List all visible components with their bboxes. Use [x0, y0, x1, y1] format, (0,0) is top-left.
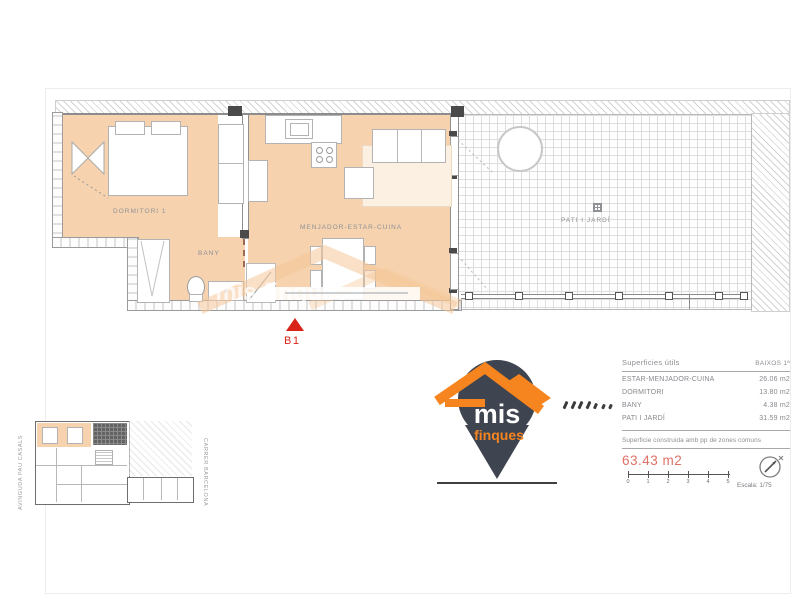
logo-word-finques: finques	[474, 427, 524, 443]
surface-name: DORMITORI	[622, 389, 664, 396]
mis-finques-logo: mis finques	[433, 355, 561, 487]
burner	[316, 156, 323, 163]
key-plan	[35, 418, 205, 508]
fence-gate-divider	[689, 295, 690, 309]
patio-tree	[497, 126, 543, 172]
burner	[316, 147, 323, 154]
surface-value: 26.06 m2	[759, 376, 790, 383]
chair	[364, 270, 376, 289]
dash-mark	[608, 404, 612, 410]
scale-label: Escala: 1/75	[737, 482, 772, 489]
pillow	[115, 121, 145, 135]
dash-mark	[593, 403, 598, 409]
sliding-door-dashed	[243, 239, 245, 267]
sink-basin	[290, 123, 309, 136]
scale-bar: 0 1 2 3 4 5	[628, 471, 730, 487]
chair	[364, 246, 376, 265]
surface-name: ESTAR-MENJADOR-CUINA	[622, 376, 715, 383]
fence-post	[515, 292, 523, 300]
main-floor-plan: PATI I JARDÍ	[0, 0, 800, 360]
kitchen-sink	[285, 119, 313, 139]
toilet-tank	[189, 294, 203, 302]
fence-post	[715, 292, 723, 300]
patio-area: PATI I JARDÍ	[456, 114, 752, 310]
surface-row: BANY 4.38 m2	[622, 402, 790, 415]
sofa-cushion-line	[421, 130, 422, 162]
kitchen-cabinet	[248, 160, 268, 202]
north-compass-icon	[758, 452, 786, 480]
sofa-cushion-line	[397, 130, 398, 162]
wardrobe	[218, 124, 244, 204]
key-inner-line	[143, 478, 144, 500]
room-label-menjador: MENJADOR-ESTAR-CUINA	[300, 224, 402, 231]
divider	[622, 448, 790, 449]
scale-tick-label: 3	[686, 479, 689, 485]
key-bed	[42, 427, 58, 444]
fence-post	[465, 292, 473, 300]
scale-line	[628, 474, 730, 475]
key-courtyard	[93, 423, 127, 445]
left-wall	[52, 112, 63, 242]
scale-tick-label: 2	[666, 479, 669, 485]
surface-value: 13.80 m2	[759, 389, 790, 396]
street-label-right: CARRER BARCELONA	[202, 438, 208, 510]
room-label-bany: BANY	[198, 250, 220, 257]
bed	[108, 126, 188, 196]
bath-vanity	[208, 281, 244, 301]
room-label-pati: PATI I JARDÍ	[561, 217, 611, 224]
surface-name: PATI I JARDÍ	[622, 415, 665, 422]
wardrobe-divider	[219, 163, 243, 164]
fence-post	[615, 292, 623, 300]
fence-post	[665, 292, 673, 300]
patio-fence	[461, 294, 747, 299]
dash-mark	[562, 401, 568, 409]
chair	[310, 270, 322, 289]
key-inner-line	[177, 478, 178, 500]
armchair	[344, 167, 374, 199]
surface-value: 31.59 m2	[759, 415, 790, 422]
dash-mark	[585, 401, 591, 409]
top-wall	[55, 113, 455, 115]
key-stairs	[95, 450, 113, 465]
key-inner-line	[56, 448, 57, 502]
entry-hall	[246, 263, 276, 303]
bottom-wall	[127, 300, 462, 311]
logo-word-mis: mis	[474, 399, 521, 429]
key-bed	[67, 427, 83, 444]
burner	[326, 147, 333, 154]
bedroom-bottom-wall	[52, 237, 139, 248]
scale-tick-label: 1	[646, 479, 649, 485]
dining-table	[322, 238, 364, 300]
vanity-basin-dot	[224, 289, 228, 293]
built-surface-note: Superficie construida amb pp de zones co…	[622, 435, 790, 448]
key-highlighted-unit	[37, 423, 91, 447]
divider	[622, 371, 790, 372]
surface-value: 4.38 m2	[763, 402, 790, 409]
shower	[137, 239, 170, 303]
right-party-wall-hatch	[751, 113, 790, 312]
surface-row: DORMITORI 13.80 m2	[622, 389, 790, 402]
unit-marker-label: B1	[284, 335, 300, 347]
surfaces-column-header: BAIXOS 1ª	[755, 360, 790, 367]
scale-tick-label: 5	[726, 479, 729, 485]
patio-door-2	[450, 253, 459, 290]
wall-accent	[451, 106, 464, 117]
chair	[310, 246, 322, 265]
sofa	[372, 129, 446, 163]
dash-mark	[577, 401, 583, 409]
logo-baseline	[437, 482, 557, 484]
burner	[326, 156, 333, 163]
scale-tick-label: 4	[706, 479, 709, 485]
dash-mark	[570, 401, 576, 409]
dash-mark	[601, 404, 605, 410]
fence-post	[740, 292, 748, 300]
wall-accent	[228, 106, 242, 116]
surface-row: ESTAR-MENJADOR-CUINA 26.06 m2	[622, 376, 790, 389]
door-post	[240, 230, 249, 238]
key-neighbour-hatch	[129, 421, 192, 476]
decorative-dashes	[564, 396, 617, 414]
unit-marker-triangle	[286, 318, 304, 331]
street-label-left: AVINGUDA PAU CASALS	[18, 426, 24, 510]
kitchen-stove	[311, 142, 337, 168]
pillow	[151, 121, 181, 135]
surface-row: PATI I JARDÍ 31.59 m2	[622, 415, 790, 428]
surfaces-title: Superficies útils	[622, 358, 680, 367]
key-inner-line	[161, 478, 162, 500]
room-label-dormitori: DORMITORI 1	[113, 208, 167, 215]
drain-icon	[593, 203, 602, 212]
scale-tick-label: 0	[626, 479, 629, 485]
key-inner-line	[57, 484, 127, 485]
surface-name: BANY	[622, 402, 642, 409]
fence-post	[565, 292, 573, 300]
divider	[622, 430, 790, 431]
